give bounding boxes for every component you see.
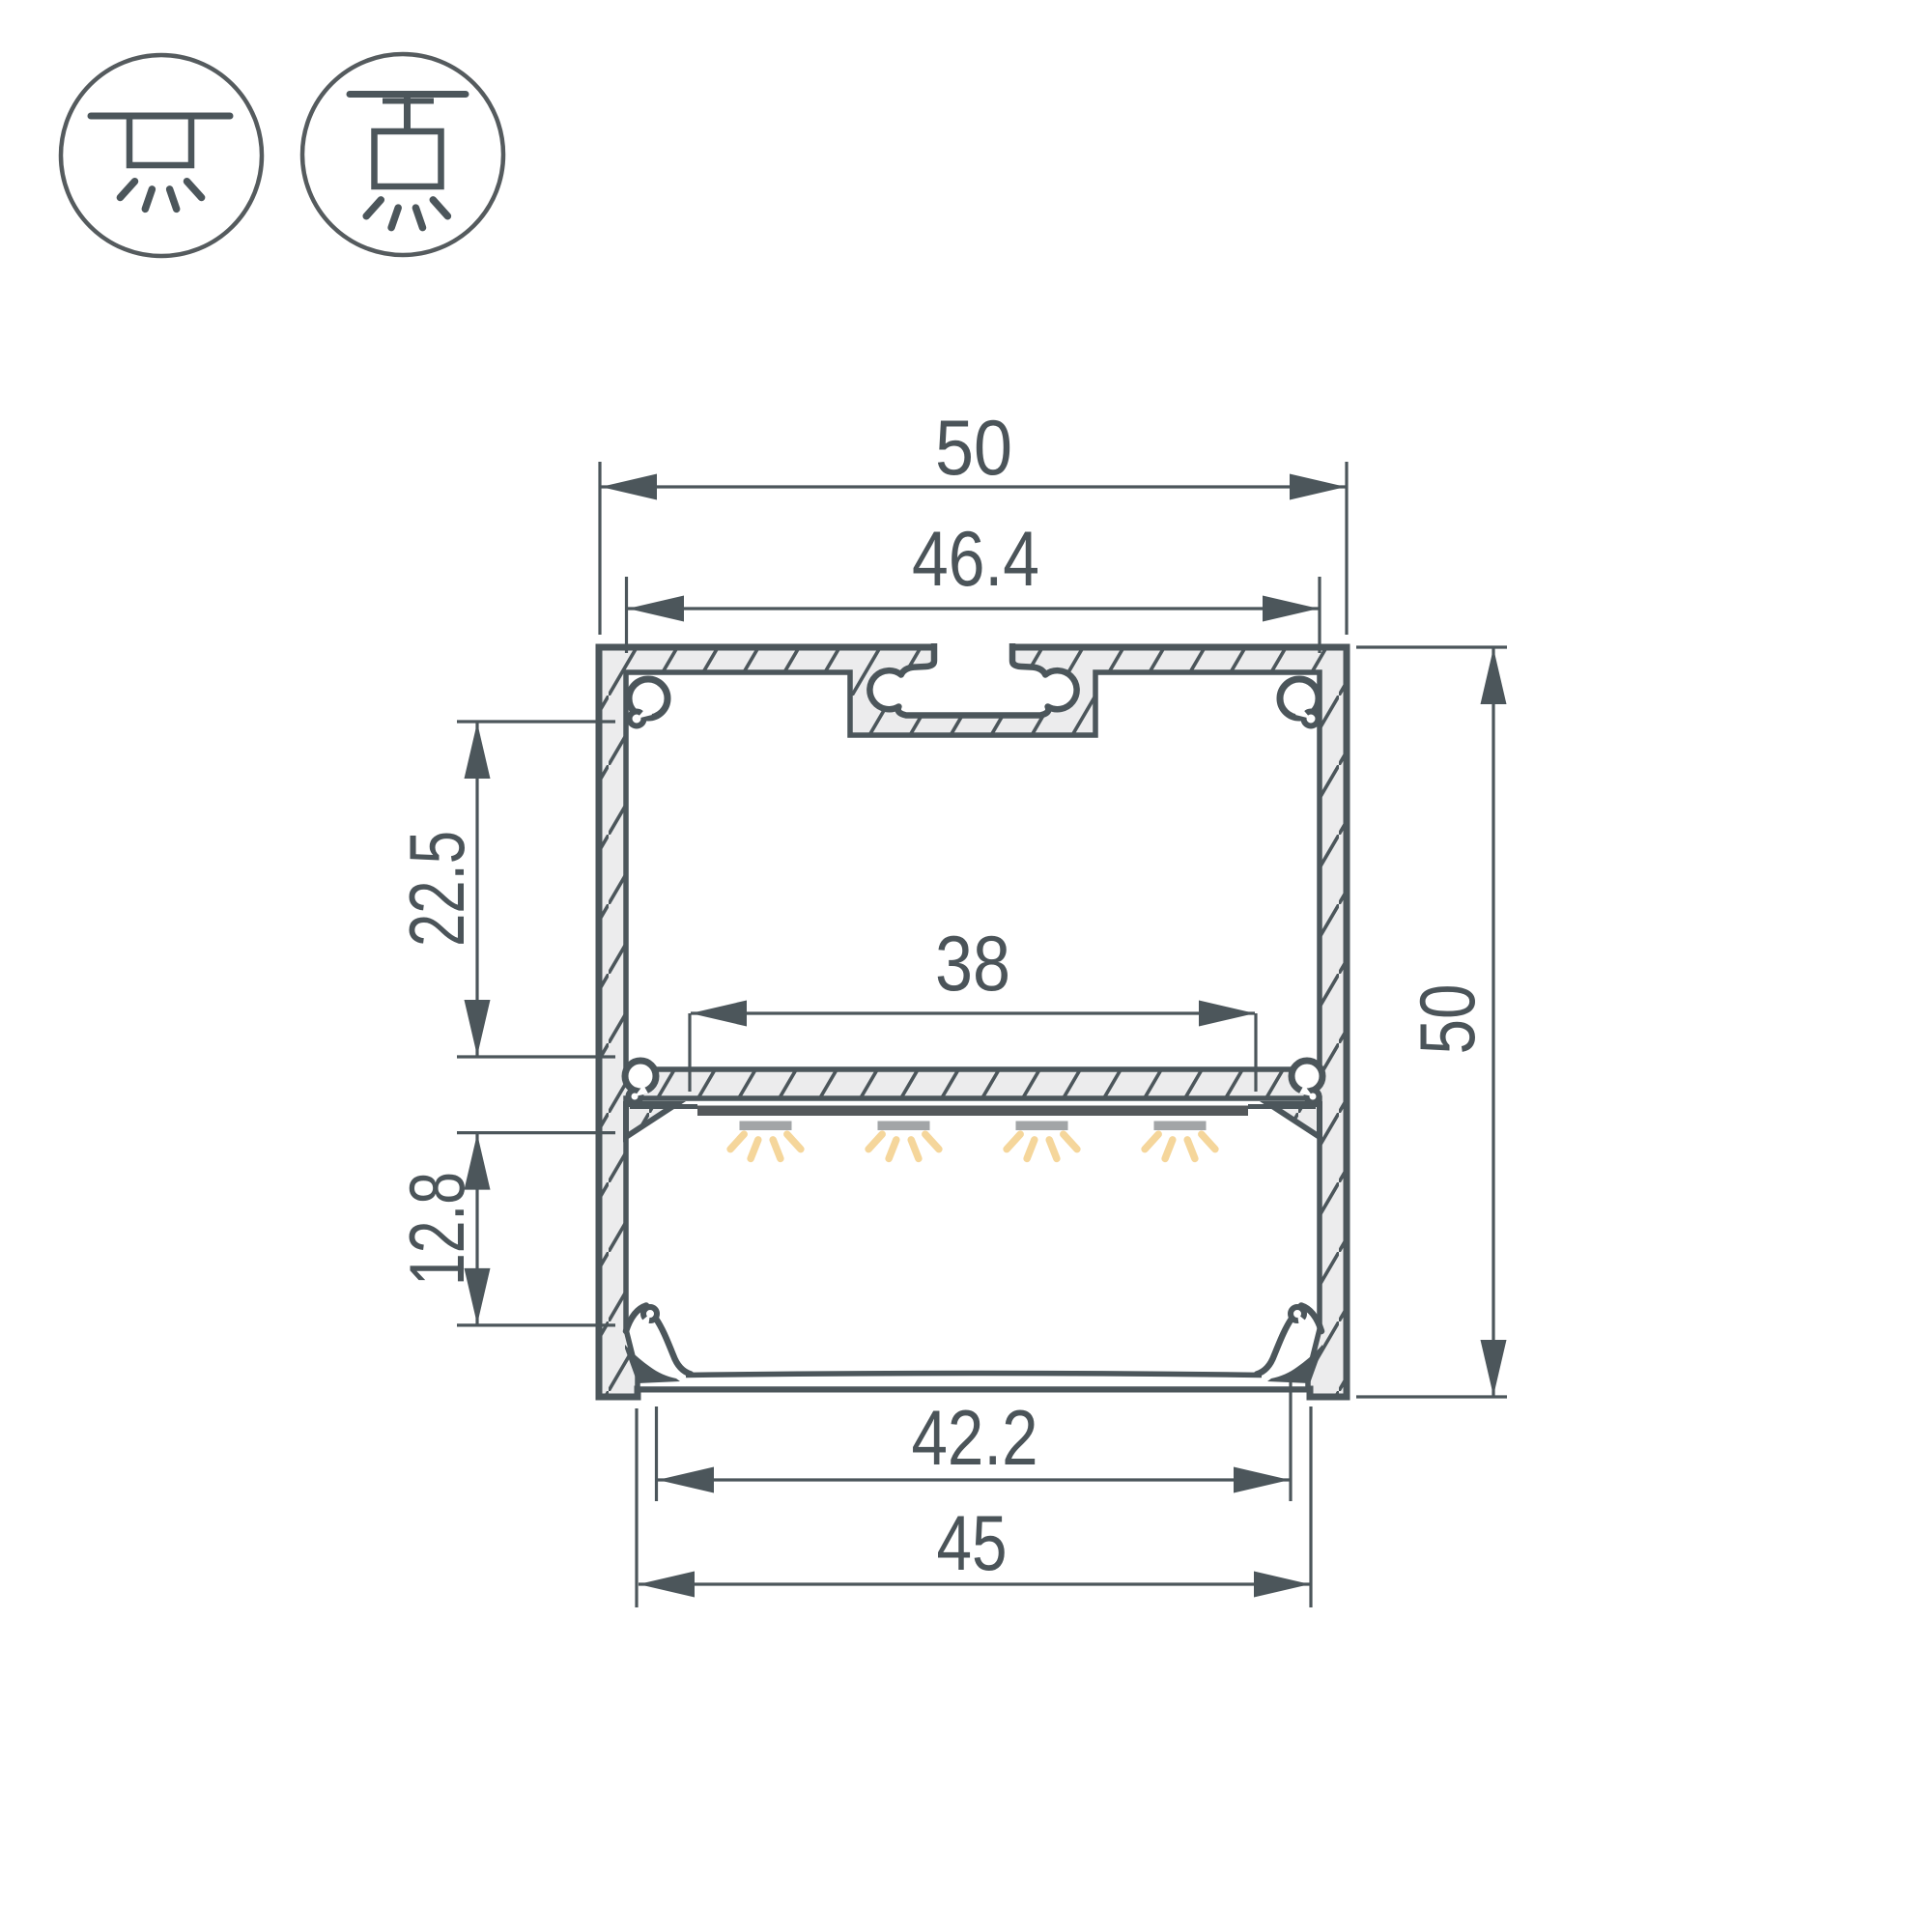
svg-text:42.2: 42.2 xyxy=(912,1395,1038,1482)
svg-text:12.8: 12.8 xyxy=(394,1172,481,1286)
svg-text:46.4: 46.4 xyxy=(912,516,1039,603)
svg-text:45: 45 xyxy=(937,1500,1008,1587)
svg-text:38: 38 xyxy=(935,921,1010,1008)
svg-text:22.5: 22.5 xyxy=(394,831,481,947)
svg-text:50: 50 xyxy=(1405,984,1492,1055)
svg-text:50: 50 xyxy=(935,405,1012,492)
